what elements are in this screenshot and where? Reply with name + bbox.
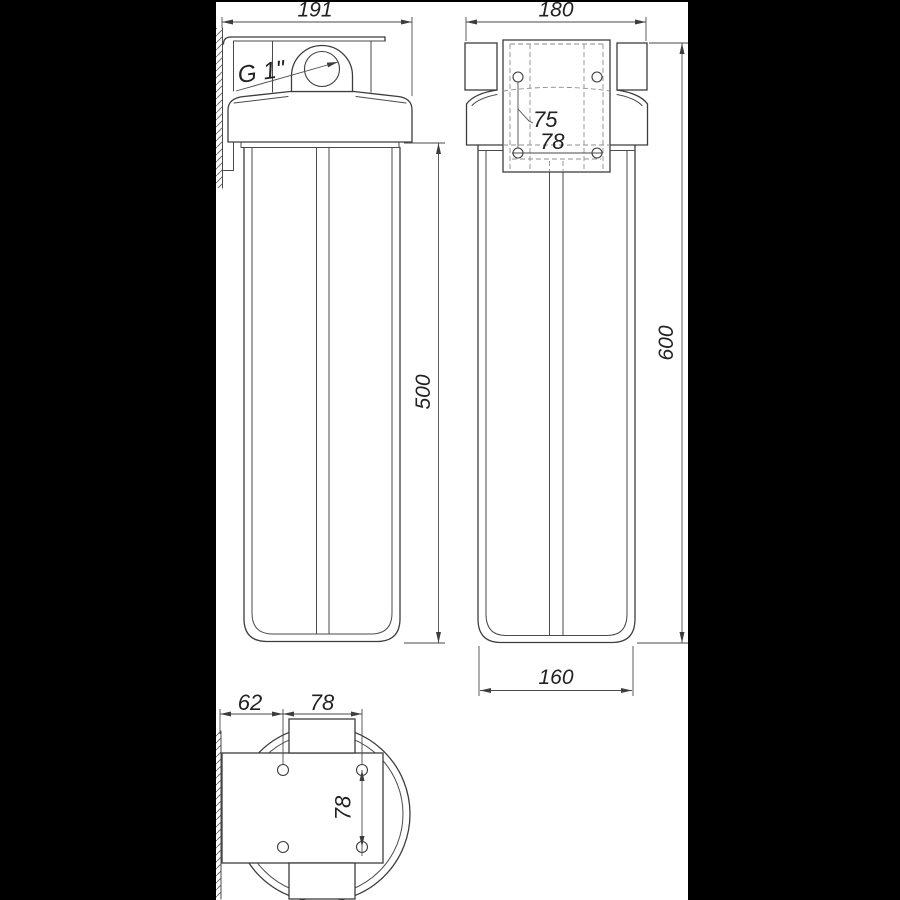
dim-hole-spacing-width-label: 78 xyxy=(310,690,335,715)
dim-thread-size-label: G 1" xyxy=(236,55,288,89)
dim-sump-height: 500 xyxy=(404,143,445,643)
left-black-bar xyxy=(0,0,216,900)
dim-sump-width: 160 xyxy=(479,646,633,696)
thread-port-hole xyxy=(305,52,340,87)
dim-overall-depth: 180 xyxy=(466,0,646,41)
dim-overall-height: 600 xyxy=(637,43,688,643)
filter-housing-drawing: 191 G 1" 500 xyxy=(0,0,900,900)
dim-sump-width-label: 160 xyxy=(538,666,573,689)
technical-drawing-page: 191 G 1" 500 xyxy=(0,0,900,900)
outlet-port-bottom xyxy=(289,863,355,899)
head-ring-front xyxy=(241,142,399,148)
top-black-line xyxy=(0,0,900,2)
front-view: 191 G 1" 500 xyxy=(214,0,445,643)
dim-sump-height-label: 500 xyxy=(412,374,435,409)
dim-hole-spacing-horizontal-label: 78 xyxy=(540,129,565,154)
housing-head-front xyxy=(228,92,412,143)
outlet-port-side xyxy=(617,43,647,90)
dim-overall-height-label: 600 xyxy=(655,325,678,360)
dim-hole-spacing-width: 78 xyxy=(283,690,362,715)
letterbox-frame xyxy=(0,0,900,900)
dim-hole-spacing-depth-label: 78 xyxy=(331,795,356,820)
sump-side xyxy=(478,145,635,643)
dim-overall-depth-label: 180 xyxy=(538,0,573,22)
bottom-view: 62 78 78 xyxy=(213,690,411,900)
right-black-bar xyxy=(688,0,900,900)
inlet-port-side xyxy=(465,43,497,90)
sump-front xyxy=(244,148,400,642)
inlet-port-bottom xyxy=(289,719,355,753)
dim-overall-width-label: 191 xyxy=(297,0,332,22)
dim-wall-to-hole-label: 62 xyxy=(238,690,262,715)
side-view: 75 78 180 600 160 xyxy=(465,0,688,696)
